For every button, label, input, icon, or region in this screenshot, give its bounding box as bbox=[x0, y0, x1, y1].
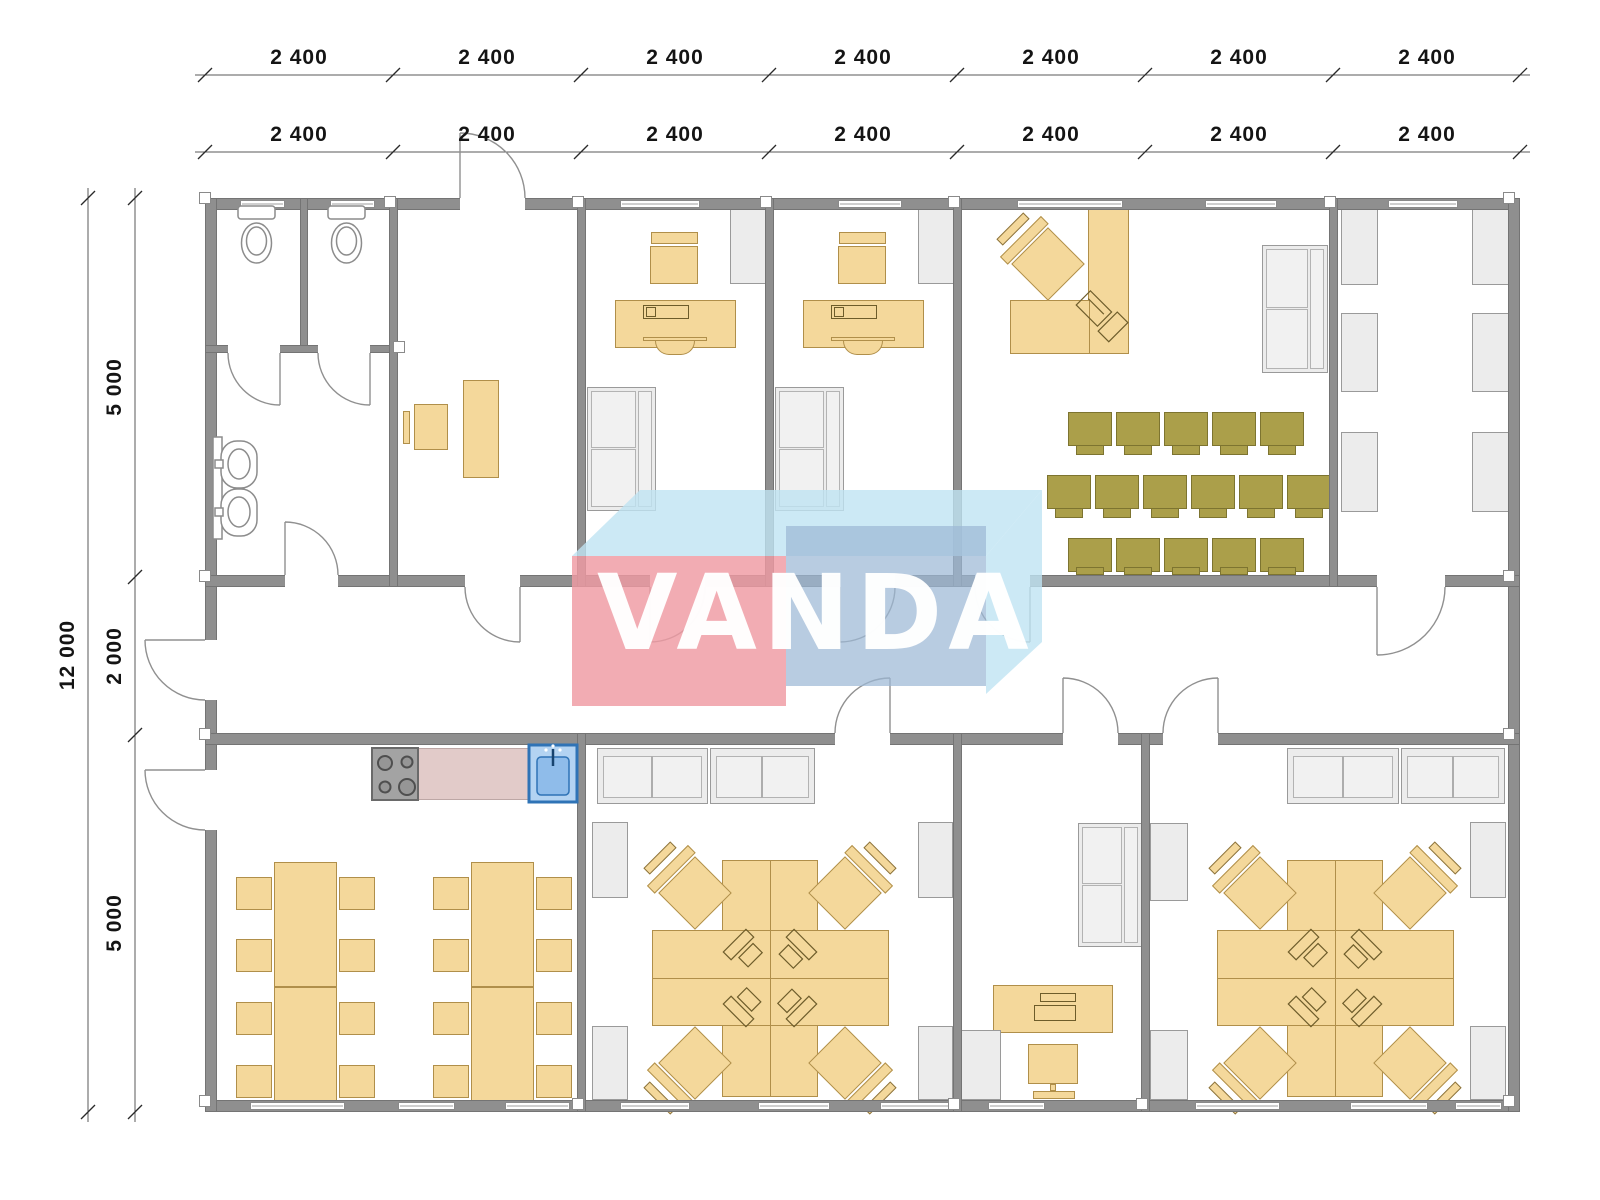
door-opening bbox=[1163, 733, 1218, 745]
window bbox=[880, 1102, 950, 1110]
kitchen-sink-icon bbox=[529, 744, 577, 802]
meeting-chair-back bbox=[1268, 445, 1296, 455]
dimension-label: 2 000 bbox=[103, 627, 127, 685]
door-opening bbox=[840, 575, 895, 587]
tucked-chair bbox=[655, 341, 695, 355]
dining-chair bbox=[536, 939, 572, 972]
office-chair bbox=[1373, 1026, 1447, 1100]
dimension-label: 5 000 bbox=[103, 358, 127, 416]
dining-chair bbox=[433, 1002, 469, 1035]
wall-cap bbox=[572, 1098, 584, 1110]
window bbox=[758, 1102, 830, 1110]
dimension-label: 2 400 bbox=[646, 123, 704, 147]
cabinet bbox=[1470, 822, 1506, 898]
dining-table bbox=[471, 862, 534, 987]
keyboard-icon bbox=[1040, 993, 1076, 1002]
wall-wc-divider bbox=[300, 198, 308, 353]
dining-table bbox=[274, 987, 337, 1112]
wall-cap bbox=[572, 196, 584, 208]
wall-cap bbox=[1136, 1098, 1148, 1110]
sofa-cushion bbox=[1082, 827, 1122, 884]
dimension-label: 5 000 bbox=[103, 894, 127, 952]
kitchen-counter bbox=[418, 748, 529, 800]
office-chair bbox=[1011, 227, 1085, 301]
computer-icon bbox=[834, 307, 844, 317]
l-desk-horizontal bbox=[1010, 300, 1090, 354]
window bbox=[838, 200, 902, 208]
chair bbox=[650, 246, 698, 284]
chair bbox=[838, 246, 886, 284]
cabinet bbox=[1150, 823, 1188, 901]
desk-divider bbox=[1218, 978, 1453, 979]
sofa-back bbox=[826, 391, 840, 507]
monitor-stem bbox=[1050, 1084, 1056, 1091]
cabinet bbox=[961, 1030, 1001, 1100]
watermark-text: VANDA bbox=[597, 552, 1035, 674]
dining-chair bbox=[433, 877, 469, 910]
sofa-back bbox=[638, 391, 652, 507]
sofa-cushion bbox=[779, 391, 824, 448]
cabinet bbox=[918, 1026, 953, 1100]
meeting-chair-back bbox=[1103, 508, 1131, 518]
door-opening bbox=[975, 575, 1030, 587]
meeting-chair bbox=[1239, 475, 1283, 509]
dimension-label: 2 400 bbox=[270, 123, 328, 147]
dining-chair bbox=[236, 939, 272, 972]
meeting-chair-back bbox=[1124, 567, 1152, 575]
meeting-chair bbox=[1095, 475, 1139, 509]
dining-chair bbox=[236, 1002, 272, 1035]
dimension-label: 2 400 bbox=[1022, 46, 1080, 70]
meeting-chair-back bbox=[1220, 445, 1248, 455]
door-opening bbox=[1063, 733, 1118, 745]
wall-cap bbox=[393, 341, 405, 353]
dining-chair bbox=[339, 877, 375, 910]
cabinet bbox=[592, 822, 628, 898]
sofa-cushion bbox=[1082, 885, 1122, 943]
monitor-stand bbox=[1033, 1091, 1075, 1099]
dining-table bbox=[471, 987, 534, 1112]
meeting-chair-back bbox=[1151, 508, 1179, 518]
sofa-cushion bbox=[1266, 309, 1308, 369]
meeting-chair bbox=[1068, 412, 1112, 446]
dimension-label: 2 400 bbox=[646, 46, 704, 70]
dining-chair bbox=[536, 1065, 572, 1098]
sofa-cushion bbox=[779, 449, 824, 507]
meeting-chair-back bbox=[1247, 508, 1275, 518]
wall-interior bbox=[953, 733, 962, 1112]
cabinet bbox=[1470, 1026, 1506, 1100]
dimension-label: 2 400 bbox=[834, 46, 892, 70]
dimension-label: 2 400 bbox=[1022, 123, 1080, 147]
wall-cap bbox=[1503, 570, 1515, 582]
window bbox=[620, 200, 700, 208]
desk bbox=[463, 380, 499, 478]
wall-cap bbox=[199, 728, 211, 740]
window bbox=[505, 1102, 570, 1110]
dining-table bbox=[274, 862, 337, 987]
cabinet bbox=[1150, 1030, 1188, 1100]
meeting-chair-back bbox=[1295, 508, 1323, 518]
sofa-cushion bbox=[1266, 249, 1308, 308]
cabinet bbox=[592, 1026, 628, 1100]
monitor-stand bbox=[403, 411, 410, 444]
chair-back bbox=[839, 232, 886, 244]
counter-divider bbox=[651, 756, 653, 798]
meeting-chair-back bbox=[1268, 567, 1296, 575]
door-opening bbox=[1377, 575, 1445, 587]
wall-cap bbox=[1503, 1095, 1515, 1107]
dimension-label: 2 400 bbox=[270, 46, 328, 70]
cabinet bbox=[1341, 208, 1378, 285]
office-chair bbox=[1373, 856, 1447, 930]
dimension-label: 2 400 bbox=[1210, 123, 1268, 147]
cabinet bbox=[918, 208, 955, 284]
cabinet bbox=[1341, 313, 1378, 392]
window bbox=[398, 1102, 455, 1110]
dining-chair bbox=[339, 1065, 375, 1098]
door-opening bbox=[650, 575, 705, 587]
door-opening bbox=[285, 575, 338, 587]
window bbox=[250, 1102, 345, 1110]
cabinet bbox=[1341, 432, 1378, 512]
door-opening bbox=[465, 575, 520, 587]
office-chair bbox=[658, 856, 732, 930]
dimension-label: 2 400 bbox=[1398, 123, 1456, 147]
wall-cap bbox=[199, 570, 211, 582]
wall-cap bbox=[760, 196, 772, 208]
wall-cap bbox=[948, 196, 960, 208]
meeting-chair-back bbox=[1220, 567, 1248, 575]
counter-divider bbox=[761, 756, 763, 798]
sink-icon bbox=[213, 437, 257, 539]
window bbox=[1388, 200, 1458, 208]
office-chair bbox=[1223, 1026, 1297, 1100]
office-chair bbox=[808, 856, 882, 930]
cabinet bbox=[1472, 208, 1509, 285]
wall-exterior-right bbox=[1508, 198, 1520, 1112]
counter-divider bbox=[1452, 756, 1454, 798]
office-chair bbox=[658, 1026, 732, 1100]
cabinet bbox=[1472, 313, 1509, 392]
window bbox=[620, 1102, 690, 1110]
meeting-chair bbox=[1164, 412, 1208, 446]
dining-chair bbox=[536, 877, 572, 910]
counter-divider bbox=[1342, 756, 1344, 798]
meeting-chair bbox=[1191, 475, 1235, 509]
meeting-chair-back bbox=[1199, 508, 1227, 518]
meeting-chair-back bbox=[1076, 445, 1104, 455]
sofa-cushion bbox=[591, 391, 636, 448]
sofa-back bbox=[1124, 827, 1138, 943]
wall-interior bbox=[577, 198, 586, 587]
chair bbox=[1028, 1044, 1078, 1084]
window bbox=[1195, 1102, 1280, 1110]
door-opening bbox=[205, 770, 217, 830]
dining-chair bbox=[236, 877, 272, 910]
meeting-chair bbox=[1116, 412, 1160, 446]
wall-cap bbox=[384, 196, 396, 208]
computer-icon bbox=[646, 307, 656, 317]
window bbox=[988, 1102, 1045, 1110]
door-opening bbox=[460, 198, 525, 210]
meeting-chair bbox=[1047, 475, 1091, 509]
door-opening bbox=[318, 345, 370, 353]
dimension-label: 12 000 bbox=[56, 620, 80, 690]
wall-cap bbox=[199, 192, 211, 204]
meeting-chair bbox=[1260, 412, 1304, 446]
wall-cap bbox=[1503, 728, 1515, 740]
door-opening bbox=[228, 345, 280, 353]
dining-chair bbox=[433, 939, 469, 972]
wall-interior bbox=[577, 733, 586, 1112]
dining-chair bbox=[236, 1065, 272, 1098]
office-chair bbox=[808, 1026, 882, 1100]
cabinet bbox=[918, 822, 953, 898]
wall-interior bbox=[1141, 733, 1150, 1112]
window bbox=[330, 200, 375, 208]
meeting-chair-back bbox=[1124, 445, 1152, 455]
door-opening bbox=[205, 640, 217, 700]
desk-divider bbox=[653, 978, 888, 979]
meeting-chair-back bbox=[1055, 508, 1083, 518]
chair-back bbox=[651, 232, 698, 244]
wall-cap bbox=[1503, 192, 1515, 204]
sofa-back bbox=[1310, 249, 1324, 369]
wall-interior bbox=[765, 198, 774, 587]
tucked-chair bbox=[843, 341, 883, 355]
wall-interior bbox=[1329, 198, 1338, 587]
office-chair bbox=[1223, 856, 1297, 930]
dining-chair bbox=[536, 1002, 572, 1035]
wall-interior bbox=[953, 198, 962, 587]
sofa-cushion bbox=[591, 449, 636, 507]
stove-icon bbox=[372, 748, 418, 800]
window bbox=[1017, 200, 1123, 208]
door-opening bbox=[835, 733, 890, 745]
cabinet bbox=[730, 208, 767, 284]
dining-chair bbox=[339, 939, 375, 972]
window bbox=[240, 200, 285, 208]
cabinet bbox=[1472, 432, 1509, 512]
dining-chair bbox=[433, 1065, 469, 1098]
laptop-icon bbox=[1034, 1005, 1076, 1021]
meeting-chair bbox=[1212, 412, 1256, 446]
wall-cap bbox=[948, 1098, 960, 1110]
chair bbox=[414, 404, 448, 450]
meeting-chair-back bbox=[1076, 567, 1104, 575]
wall-interior bbox=[389, 198, 398, 587]
dimension-label: 2 400 bbox=[834, 123, 892, 147]
meeting-chair-back bbox=[1172, 445, 1200, 455]
wall-cap bbox=[199, 1095, 211, 1107]
meeting-chair-back bbox=[1172, 567, 1200, 575]
dining-chair bbox=[339, 1002, 375, 1035]
meeting-chair bbox=[1287, 475, 1331, 509]
window bbox=[1350, 1102, 1428, 1110]
dimension-label: 2 400 bbox=[1398, 46, 1456, 70]
dimension-label: 2 400 bbox=[458, 46, 516, 70]
l-desk-vertical bbox=[1088, 208, 1129, 354]
meeting-chair bbox=[1143, 475, 1187, 509]
dimension-label: 2 400 bbox=[1210, 46, 1268, 70]
wall-cap bbox=[1324, 196, 1336, 208]
floor-plan: 2 400 2 400 2 400 2 400 2 400 2 400 2 40… bbox=[0, 0, 1600, 1200]
window bbox=[1205, 200, 1277, 208]
window bbox=[1455, 1102, 1502, 1110]
dimension-label: 2 400 bbox=[458, 123, 516, 147]
